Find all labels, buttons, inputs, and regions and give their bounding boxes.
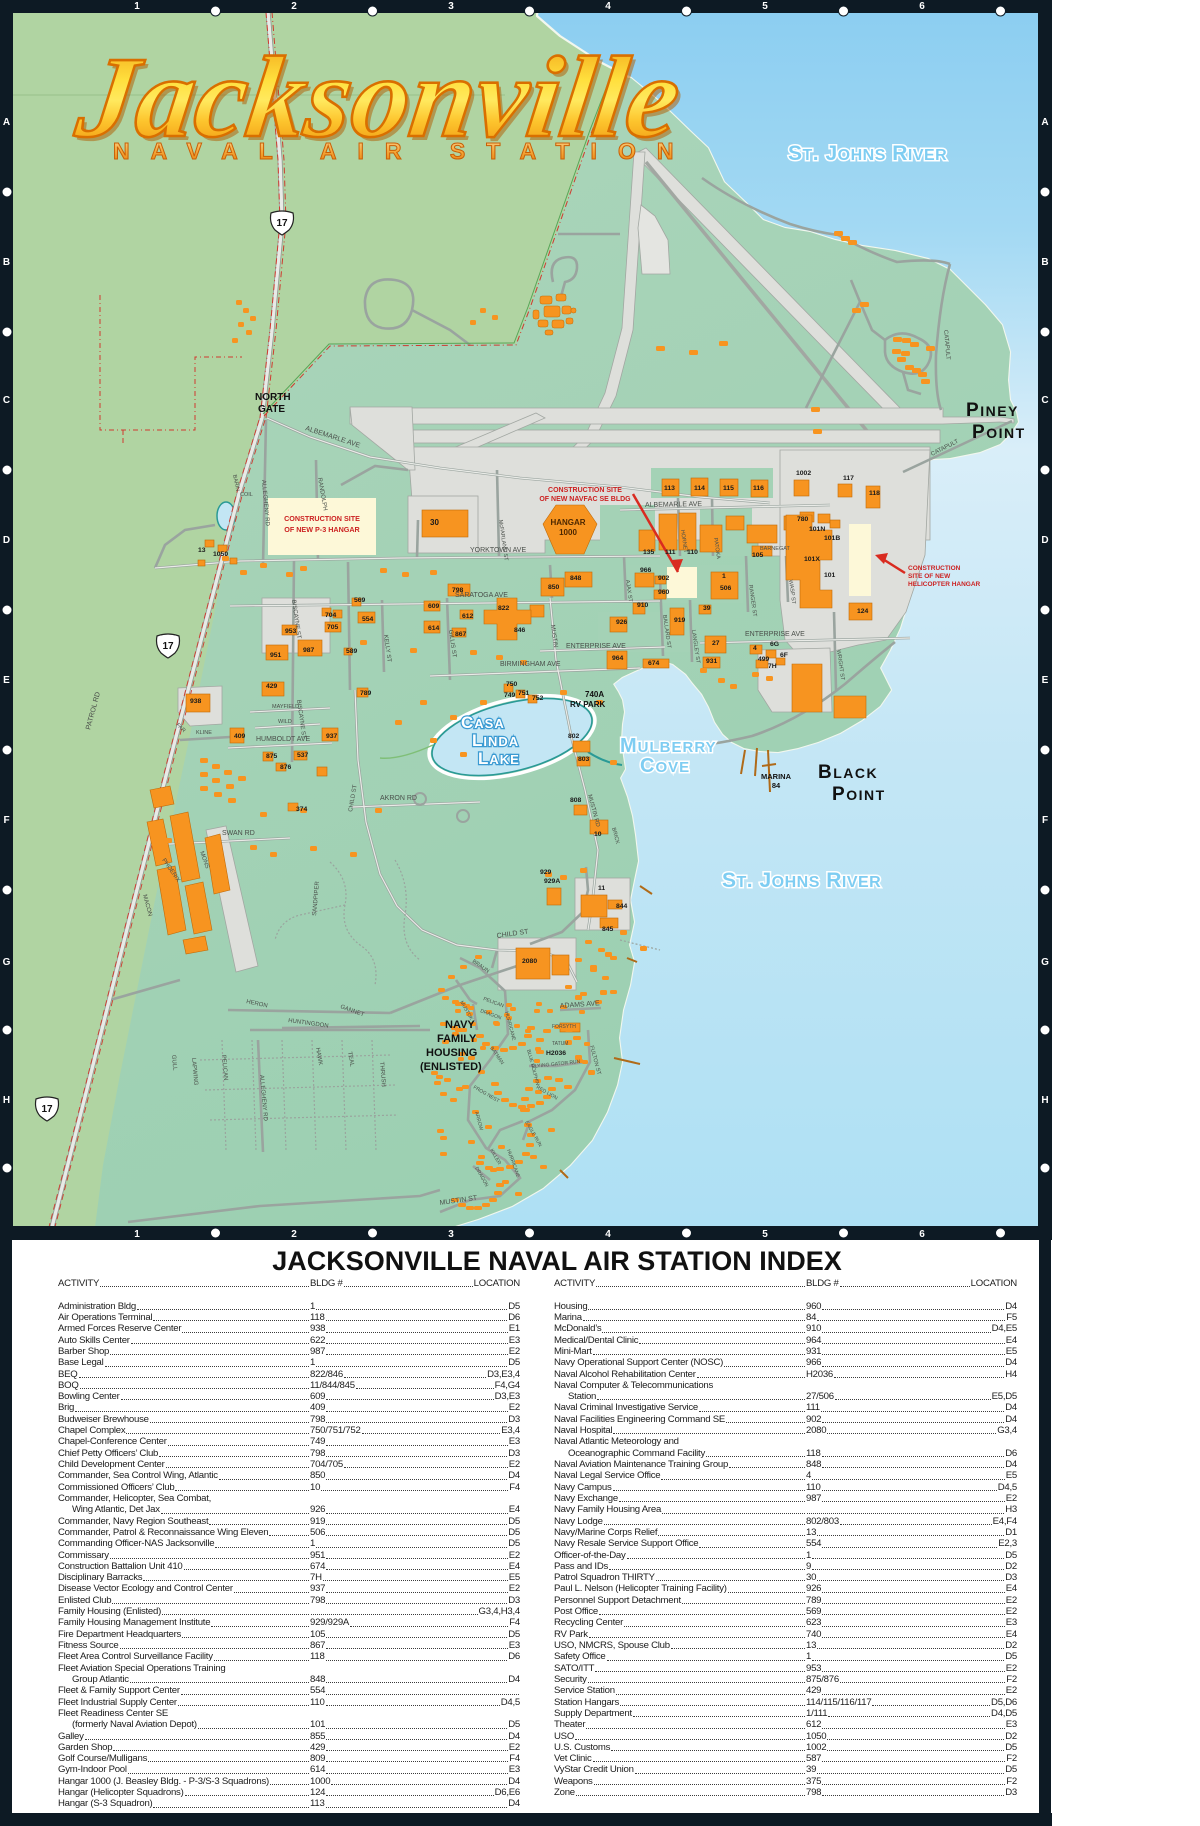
svg-text:C: C (1041, 395, 1048, 406)
svg-text:910: 910 (637, 602, 649, 609)
svg-text:4: 4 (605, 1, 611, 12)
svg-text:F: F (1042, 815, 1048, 826)
svg-text:780: 780 (797, 516, 809, 523)
svg-text:537: 537 (297, 752, 309, 759)
svg-text:705: 705 (327, 624, 339, 631)
svg-text:1002: 1002 (796, 470, 811, 477)
svg-text:FAMILY: FAMILY (437, 1033, 477, 1045)
svg-text:2: 2 (291, 1, 297, 12)
svg-text:845: 845 (602, 926, 614, 933)
svg-text:17: 17 (276, 218, 288, 229)
svg-text:CONSTRUCTION SITE: CONSTRUCTION SITE (284, 514, 360, 523)
svg-text:BIRMINGHAM AVE: BIRMINGHAM AVE (500, 661, 561, 668)
svg-text:5: 5 (762, 1229, 768, 1240)
svg-text:CONSTRUCTION: CONSTRUCTION (908, 565, 961, 572)
svg-text:929: 929 (540, 869, 552, 876)
svg-text:COVE: COVE (640, 755, 690, 777)
svg-text:TATUM: TATUM (552, 1041, 568, 1047)
svg-text:CONSTRUCTION SITE: CONSTRUCTION SITE (548, 487, 622, 494)
svg-text:803: 803 (578, 756, 590, 763)
svg-text:116: 116 (753, 485, 764, 492)
svg-text:G: G (3, 957, 11, 968)
svg-text:554: 554 (362, 616, 374, 623)
svg-text:6G: 6G (770, 641, 779, 648)
svg-text:609: 609 (428, 603, 440, 610)
svg-text:749: 749 (504, 692, 516, 699)
svg-text:798: 798 (452, 587, 464, 594)
svg-text:114: 114 (694, 485, 705, 492)
svg-text:10: 10 (594, 831, 602, 838)
svg-text:111: 111 (665, 549, 676, 556)
svg-text:30: 30 (430, 518, 439, 527)
svg-text:OF NEW P-3 HANGAR: OF NEW P-3 HANGAR (284, 525, 360, 534)
svg-text:919: 919 (674, 617, 686, 624)
svg-text:499: 499 (758, 656, 770, 663)
svg-text:H2036: H2036 (546, 1050, 566, 1057)
svg-text:867: 867 (455, 631, 467, 638)
svg-text:1: 1 (134, 1, 140, 12)
svg-text:101: 101 (824, 572, 836, 579)
svg-text:BLACK: BLACK (818, 762, 878, 783)
svg-text:ENTERPRISE AVE: ENTERPRISE AVE (566, 643, 626, 650)
svg-text:ENTERPRISE AVE: ENTERPRISE AVE (745, 631, 805, 638)
svg-text:751: 751 (518, 690, 530, 697)
svg-text:MARINA: MARINA (761, 772, 792, 781)
svg-text:844: 844 (616, 903, 628, 910)
svg-text:E: E (1042, 675, 1049, 686)
svg-text:HANGAR: HANGAR (550, 518, 585, 527)
svg-text:101X: 101X (804, 556, 820, 563)
svg-text:101B: 101B (824, 535, 840, 542)
svg-text:NAVAL AIR STATION: NAVAL AIR STATION (113, 138, 694, 164)
svg-text:429: 429 (266, 683, 278, 690)
svg-text:POINT: POINT (832, 784, 886, 805)
svg-text:H: H (1041, 1095, 1048, 1106)
svg-text:6F: 6F (780, 652, 788, 659)
svg-text:39: 39 (703, 605, 711, 612)
svg-text:135: 135 (643, 549, 655, 556)
svg-text:612: 612 (462, 613, 474, 620)
svg-text:802: 802 (568, 733, 580, 740)
svg-text:NAVY: NAVY (445, 1019, 475, 1031)
svg-text:(ENLISTED): (ENLISTED) (420, 1061, 482, 1073)
svg-text:101N: 101N (809, 526, 825, 533)
svg-text:CASA: CASA (461, 713, 505, 732)
svg-text:848: 848 (570, 575, 582, 582)
svg-text:850: 850 (548, 584, 560, 591)
svg-text:987: 987 (303, 647, 315, 654)
svg-text:931: 931 (706, 658, 718, 665)
svg-text:17: 17 (41, 1104, 53, 1115)
svg-text:117: 117 (843, 475, 854, 482)
svg-text:B: B (3, 257, 10, 268)
svg-text:KLINE: KLINE (196, 730, 212, 736)
svg-text:674: 674 (648, 660, 660, 667)
svg-text:C: C (3, 395, 10, 406)
svg-text:POINT: POINT (972, 422, 1026, 443)
svg-text:750: 750 (506, 681, 518, 688)
svg-text:SITE OF NEW: SITE OF NEW (908, 573, 951, 580)
svg-text:953: 953 (285, 628, 297, 635)
svg-text:964: 964 (612, 655, 624, 662)
svg-text:6: 6 (919, 1229, 925, 1240)
svg-text:2: 2 (291, 1229, 297, 1240)
svg-text:960: 960 (658, 589, 670, 596)
svg-text:740A: 740A (585, 690, 604, 699)
svg-text:D: D (1041, 535, 1048, 546)
svg-text:84: 84 (772, 781, 781, 790)
svg-text:929A: 929A (544, 878, 560, 885)
svg-text:875: 875 (266, 753, 278, 760)
svg-text:13: 13 (198, 547, 206, 554)
svg-text:WILD: WILD (278, 719, 292, 725)
svg-text:3: 3 (448, 1, 454, 12)
svg-text:1: 1 (134, 1229, 140, 1240)
svg-text:822: 822 (498, 605, 510, 612)
svg-text:1050: 1050 (213, 551, 228, 558)
svg-text:OF NEW NAVFAC SE BLDG: OF NEW NAVFAC SE BLDG (539, 496, 631, 503)
svg-text:G: G (1041, 957, 1049, 968)
svg-text:951: 951 (270, 652, 282, 659)
svg-text:374: 374 (296, 806, 308, 813)
svg-text:1: 1 (722, 573, 726, 580)
svg-text:846: 846 (514, 627, 526, 634)
svg-text:4: 4 (605, 1229, 611, 1240)
svg-text:113: 113 (664, 485, 675, 492)
svg-text:11: 11 (598, 885, 605, 892)
svg-text:E: E (3, 675, 10, 686)
svg-text:GATE: GATE (258, 404, 285, 415)
svg-text:SWAN RD: SWAN RD (222, 830, 255, 837)
svg-text:1000: 1000 (559, 528, 577, 537)
svg-text:937: 937 (326, 733, 338, 740)
svg-text:COIL: COIL (240, 492, 253, 498)
svg-text:F: F (3, 815, 9, 826)
svg-text:506: 506 (720, 585, 732, 592)
svg-text:409: 409 (234, 733, 246, 740)
svg-text:105: 105 (752, 552, 764, 559)
svg-text:D: D (3, 535, 10, 546)
svg-text:H: H (3, 1095, 10, 1106)
svg-text:5: 5 (762, 1, 768, 12)
svg-text:PINEY: PINEY (966, 400, 1019, 421)
svg-text:17: 17 (162, 641, 174, 652)
svg-text:LINDA: LINDA (472, 731, 519, 750)
svg-text:NORTH: NORTH (255, 392, 291, 403)
svg-text:ALBEMARLE AVE: ALBEMARLE AVE (645, 501, 703, 509)
svg-text:7H: 7H (768, 663, 777, 670)
svg-text:589: 589 (346, 648, 358, 655)
svg-text:926: 926 (616, 619, 628, 626)
svg-text:704: 704 (325, 612, 337, 619)
svg-text:614: 614 (428, 625, 440, 632)
svg-text:4: 4 (753, 645, 757, 652)
svg-text:569: 569 (354, 597, 366, 604)
svg-text:MULBERRY: MULBERRY (620, 735, 717, 757)
svg-text:LAKE: LAKE (478, 749, 520, 768)
svg-text:110: 110 (687, 549, 698, 556)
svg-text:808: 808 (570, 797, 582, 804)
svg-text:6: 6 (919, 1, 925, 12)
svg-text:789: 789 (360, 690, 372, 697)
svg-text:3: 3 (448, 1229, 454, 1240)
svg-text:115: 115 (723, 485, 734, 492)
svg-text:A: A (1041, 117, 1048, 128)
svg-text:938: 938 (190, 698, 202, 705)
svg-text:RV PARK: RV PARK (570, 700, 605, 709)
svg-text:A: A (3, 117, 10, 128)
svg-text:2080: 2080 (522, 958, 537, 965)
svg-text:HOUSING: HOUSING (426, 1047, 477, 1059)
svg-text:902: 902 (658, 575, 670, 582)
svg-text:124: 124 (857, 608, 869, 615)
svg-text:752: 752 (532, 695, 544, 702)
svg-text:966: 966 (640, 567, 652, 574)
svg-text:BARNEGAT: BARNEGAT (760, 546, 790, 552)
svg-text:FORSYTH: FORSYTH (552, 1024, 576, 1030)
svg-text:876: 876 (280, 764, 292, 771)
svg-text:MAYFIELD: MAYFIELD (272, 704, 299, 710)
svg-text:YORKTOWN AVE: YORKTOWN AVE (470, 547, 526, 554)
svg-text:B: B (1041, 257, 1048, 268)
svg-text:27: 27 (712, 640, 720, 647)
svg-text:AKRON RD: AKRON RD (380, 795, 417, 802)
svg-text:118: 118 (869, 490, 880, 497)
svg-text:HELICOPTER HANGAR: HELICOPTER HANGAR (908, 581, 981, 588)
